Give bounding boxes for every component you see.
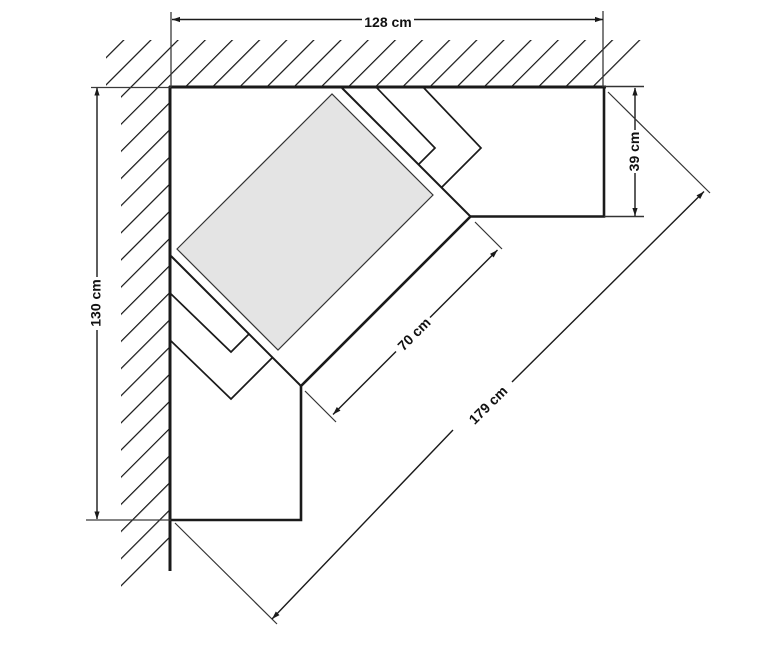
svg-text:128 cm: 128 cm — [364, 14, 411, 30]
svg-text:130 cm: 130 cm — [88, 279, 104, 326]
svg-text:39 cm: 39 cm — [626, 132, 642, 172]
